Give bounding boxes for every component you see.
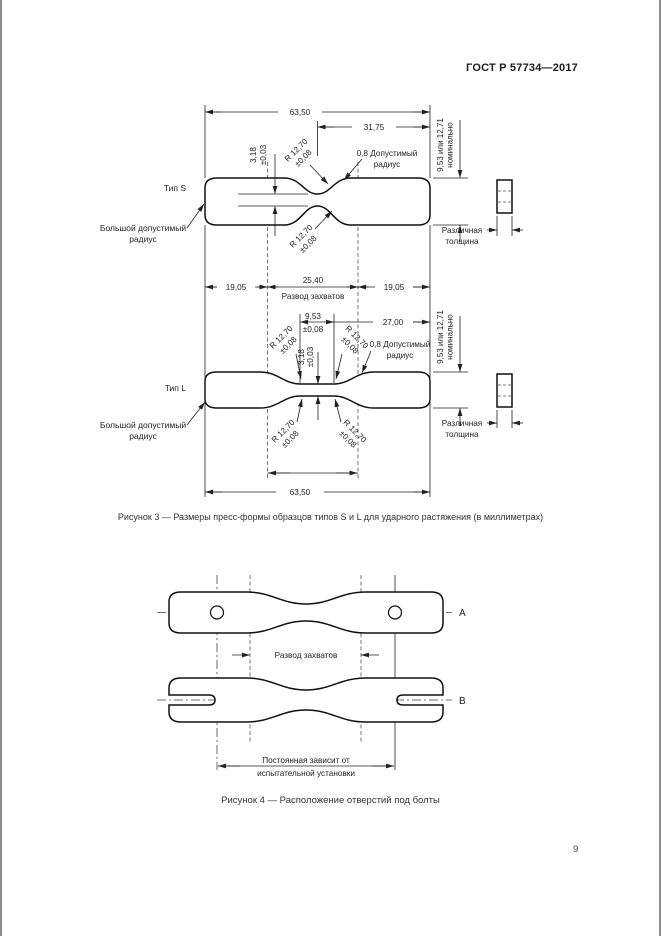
big-radius-note-l: Большой допустимый радиус [100, 402, 205, 441]
small-radius-line2: радиус [387, 351, 414, 360]
big-radius-note-s: Большой допустимый радиус [100, 204, 204, 244]
dimension-half: 31,75 [318, 121, 431, 132]
big-radius-line1: Большой допустимый [100, 223, 186, 233]
grip-separation-label: Развод захватов [275, 651, 338, 660]
dimension-overall-top: 63,50 [205, 106, 430, 117]
grip-separation-label: Развод захватов [282, 292, 345, 301]
figure3-drawing: 63,50 31,75 3,18 ±0,03 R 12,70 ±0,08 0,8… [0, 90, 661, 510]
dim-9-53-tol: ±0,08 [303, 325, 324, 334]
small-radius-note-l: 0,8 Допустимый радиус [362, 340, 430, 373]
variant-a-label: А [459, 608, 466, 619]
type-l-label: Тип L [165, 383, 187, 393]
dim-3-18-l: 3,18 [297, 349, 306, 365]
dimension-overall-bottom: 63,50 [205, 225, 430, 498]
dim-19-05-left: 19,05 [226, 283, 247, 292]
specimen-type-l-outline [205, 372, 430, 408]
radius-label-l-lower-left: R 12,70 ±0,08 [270, 399, 302, 450]
cross-section-s: Различная толщина [442, 180, 523, 246]
thickness-line2: номинально [446, 314, 455, 360]
radius-label-s-top: R 12,70 ±0,08 [283, 137, 328, 184]
big-radius-line2: радиус [129, 431, 157, 441]
small-radius-line1: 0,8 Допустимый [370, 340, 431, 349]
bolt-hole-right [389, 606, 402, 619]
thickness-dimension-l: 9,53 или 12,71 номинально [433, 310, 468, 426]
type-s-label: Тип S [164, 183, 187, 193]
big-radius-line1: Большой допустимый [100, 420, 186, 430]
var-thickness-line2: толщина [445, 237, 479, 246]
dim-9-53: 9,53 [305, 312, 321, 321]
document-header: ГОСТ Р 57734—2017 [466, 62, 578, 74]
thickness-line2: номинально [446, 122, 455, 168]
page-number: 9 [573, 844, 578, 855]
dim-63-50-bottom: 63,50 [290, 488, 311, 497]
radius-label-l-upper-right: R 12,70 ±0,08 [336, 324, 370, 379]
figure4-caption: Рисунок 4 — Расположение отверстий под б… [10, 795, 651, 806]
dim-19-05-right: 19,05 [384, 283, 405, 292]
grip-separation-annotation: Развод захватов [232, 651, 379, 660]
var-thickness-line1: Различная [442, 419, 482, 428]
note-line2: испытательной установки [257, 769, 355, 778]
thickness-line1: 9,53 или 12,71 [436, 118, 445, 172]
dim-25-40: 25,40 [303, 276, 324, 285]
dim-31-75: 31,75 [364, 123, 385, 132]
thickness-line1: 9,53 или 12,71 [436, 310, 445, 364]
dimension-row-grips: 19,05 25,40 19,05 Развод захватов [205, 276, 430, 301]
small-radius-line2: радиус [374, 160, 401, 169]
specimen-type-s-outline [205, 178, 430, 225]
dim-3-18-tol-s: ±0,03 [259, 144, 268, 165]
bolt-hole-left [211, 606, 224, 619]
var-thickness-line2: толщина [445, 430, 479, 439]
thickness-dimension-s: 9,53 или 12,71 номинально [433, 118, 468, 242]
dimension-hole-spacing: Постоянная зависит от испытательной уста… [218, 756, 394, 778]
big-radius-line2: радиус [129, 234, 157, 244]
dim-3-18-s: 3,18 [249, 147, 258, 163]
figure4-drawing: А Развод захватов В Постоянная зависит о… [0, 560, 661, 810]
dim-27-00: 27,00 [383, 318, 404, 327]
figure3-caption: Рисунок 3 — Размеры пресс-формы образцов… [10, 512, 651, 522]
variant-b-label: В [459, 696, 466, 707]
small-radius-note-s: 0,8 Допустимый радиус [344, 149, 417, 180]
dim-3-18-tol-l: ±0,03 [306, 346, 315, 367]
small-radius-line1: 0,8 Допустимый [357, 149, 418, 158]
var-thickness-line1: Различная [442, 226, 482, 235]
cross-section-l: Различная толщина [442, 374, 523, 439]
dim-63-50-top: 63,50 [290, 108, 311, 117]
note-line1: Постоянная зависит от [262, 756, 350, 765]
